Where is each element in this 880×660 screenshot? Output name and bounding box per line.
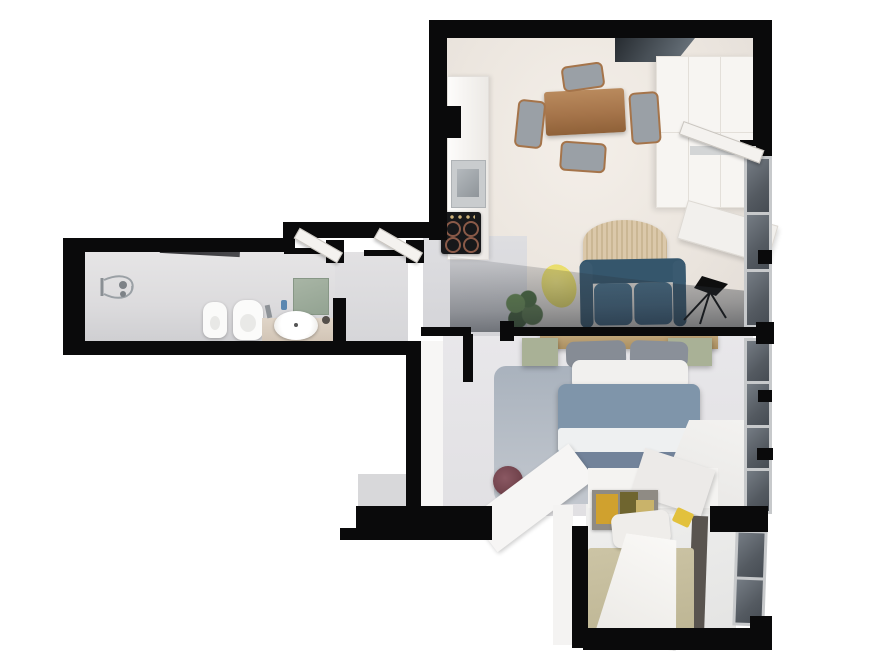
toilet-bowl: [240, 314, 256, 332]
soap-dispenser: [281, 300, 287, 310]
bedroom-window-strip: [744, 338, 772, 514]
floor-plan-canvas: [0, 0, 880, 660]
window-nub-2: [758, 390, 772, 402]
wall-wing-bottom: [63, 341, 408, 355]
burner-2: [463, 221, 479, 237]
wall-wing-left: [63, 238, 85, 352]
burner-4: [463, 237, 479, 253]
wall-right-top: [753, 20, 772, 150]
sink-drain: [294, 323, 298, 327]
toilet: [233, 300, 263, 340]
vessel-sink: [274, 311, 318, 340]
divider-main: [505, 327, 773, 336]
floor-lamp: [676, 268, 738, 326]
sofa: [579, 252, 686, 330]
window-pane: [747, 159, 769, 212]
wall-corridor-vert: [406, 341, 421, 516]
sofa-cushion-left: [594, 283, 633, 326]
wall-top: [432, 20, 772, 38]
wall-step-thin: [340, 528, 364, 540]
cooktop: [441, 212, 481, 254]
wall-block-right: [710, 506, 768, 532]
shower-fixture: [96, 268, 144, 306]
window-pane: [747, 272, 769, 325]
bedroom2-window-strip: [732, 529, 767, 626]
wall-kitchen-notch: [443, 106, 461, 138]
bedroom-door-stub: [463, 334, 473, 382]
living-window-strip: [744, 156, 772, 328]
window-pane: [747, 471, 769, 511]
wall-bedroom2-bottom: [583, 628, 759, 650]
nightstand-left: [522, 338, 558, 366]
wall-wing-top: [63, 238, 295, 252]
burner-3: [445, 237, 461, 253]
wall-step-block: [356, 506, 492, 540]
cooktop-controls: [449, 215, 475, 219]
sofa-back: [579, 258, 685, 284]
dining-table: [544, 88, 626, 136]
sofa-cushion-right: [634, 282, 673, 325]
bidet: [203, 302, 227, 338]
dining-chair-left: [514, 99, 547, 150]
sage-mirror: [293, 278, 329, 315]
dining-chair-right: [628, 91, 662, 145]
window-nub-1: [758, 250, 772, 264]
bath-accessory: [322, 316, 330, 324]
kitchen-sink: [451, 160, 486, 208]
window-pane: [737, 533, 765, 577]
divider-cap-right: [756, 322, 774, 344]
window-nub-3: [757, 448, 773, 460]
bedroom2-left-wall-top: [553, 505, 573, 645]
wall-closet-vert: [333, 298, 346, 343]
corridor-walltop-white: [421, 341, 443, 516]
sink-basin: [457, 169, 479, 197]
sofa-arm-left: [579, 262, 593, 328]
bidet-bowl: [210, 316, 220, 330]
window-pane: [747, 341, 769, 381]
burner-1: [445, 221, 461, 237]
wall-bedroom2-corner: [750, 616, 772, 650]
divider-cap-left: [500, 321, 514, 341]
dining-chair-bottom: [559, 140, 607, 173]
